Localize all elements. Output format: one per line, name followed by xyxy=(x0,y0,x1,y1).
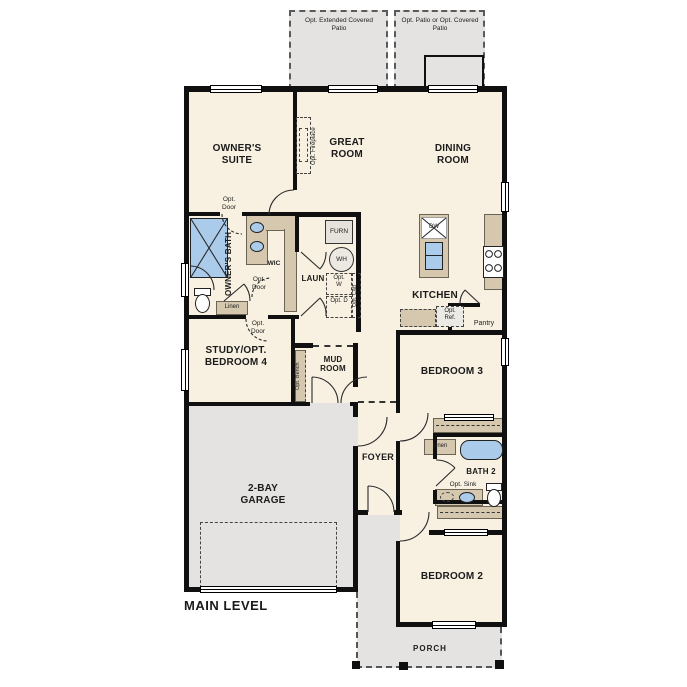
water-heater-label: WH xyxy=(336,256,347,263)
opt-bench-label: Opt. Bench xyxy=(295,352,306,400)
wall-mudroom-top-dashed xyxy=(313,345,353,347)
bedroom2-closet-rod xyxy=(440,512,500,513)
room-label-study: STUDY/OPT. BEDROOM 4 xyxy=(186,345,286,369)
window-bedroom3 xyxy=(501,338,509,366)
kitchen-sink xyxy=(425,242,443,270)
patio-left-label: Opt. Extended Covered Patio xyxy=(302,17,376,33)
owners-shower xyxy=(190,218,228,278)
wall-owners-bath-top-b xyxy=(242,212,297,216)
opt-door-label-study: Opt. Door xyxy=(246,320,270,336)
porch-edge-bottom xyxy=(356,666,502,668)
room-label-garage: 2-BAY GARAGE xyxy=(233,483,293,507)
wall-bath2-top xyxy=(433,433,507,437)
range xyxy=(483,246,504,278)
opt-door-label-wic: Opt. Door xyxy=(247,276,271,292)
opt-dryer-label: Opt. D xyxy=(330,298,348,305)
opt-fireplace-label: Opt. Fireplace xyxy=(311,118,318,174)
furnace-label: FURN xyxy=(325,220,353,244)
room-label-laundry: LAUN xyxy=(298,274,328,283)
bath2-toilet-bowl xyxy=(487,489,501,507)
room-label-dining-room: DINING ROOM xyxy=(423,143,483,167)
room-label-kitchen: KITCHEN xyxy=(395,290,475,302)
porch-edge-left xyxy=(356,592,358,668)
porch-post xyxy=(399,662,408,670)
porch-post xyxy=(495,660,504,669)
room-label-pantry: Pantry xyxy=(466,320,502,328)
room-label-great-room: GREAT ROOM xyxy=(317,137,377,161)
owners-toilet-bowl xyxy=(195,294,210,313)
opt-fireplace-inner xyxy=(299,128,308,162)
window-dining xyxy=(428,85,478,93)
room-label-bath2: BATH 2 xyxy=(461,467,501,476)
wall-owners-bath-bottom-a xyxy=(186,315,246,319)
garage-door xyxy=(200,586,337,593)
bath2-tub xyxy=(460,440,503,460)
porch-post xyxy=(352,661,360,669)
wall-exterior-left xyxy=(184,86,189,592)
opt-fridge-label: Opt. Ref. xyxy=(440,308,460,322)
bath2-sink xyxy=(459,492,475,503)
wall-laundry-top xyxy=(295,212,361,217)
window-great-room xyxy=(328,85,378,93)
linen-label-bath2: Linen xyxy=(424,439,456,455)
garage-option-outline xyxy=(200,522,337,588)
opening-foyer-top-dashed xyxy=(358,401,396,403)
floor-plan: Opt. Extended Covered Patio Opt. Patio o… xyxy=(0,0,687,687)
opt-sink-label: Opt. Sink xyxy=(446,481,480,489)
bath2-opt-sink xyxy=(440,492,454,502)
dishwasher-label: DW xyxy=(421,217,447,239)
wall-garage-top xyxy=(184,402,310,406)
wall-hall-left-a xyxy=(396,330,400,413)
window-owners-bath xyxy=(181,263,189,297)
room-label-bedroom3: BEDROOM 3 xyxy=(412,366,492,378)
wall-wic-right xyxy=(295,212,299,252)
window-bedroom2 xyxy=(432,621,476,629)
owners-sink xyxy=(250,222,264,233)
wall-foyer-front-a xyxy=(353,510,368,515)
porch-left-area xyxy=(357,515,400,668)
room-label-foyer: FOYER xyxy=(357,452,399,463)
wall-garage-right xyxy=(353,402,358,417)
water-heater: WH xyxy=(329,247,354,272)
owners-sink xyxy=(250,241,264,252)
room-label-mud-room: MUD ROOM xyxy=(313,355,353,374)
room-label-wic: WIC xyxy=(263,260,285,268)
patio-door-dining xyxy=(501,182,509,212)
wall-garage-right-b xyxy=(353,446,358,587)
kitchen-sink-divider xyxy=(426,255,442,256)
wall-mudroom-top xyxy=(291,343,313,348)
opt-cabinet-label: Opt. Cab xyxy=(352,275,359,316)
bedroom3-closet-doors xyxy=(444,414,494,421)
wall-mudroom-right xyxy=(353,343,358,387)
wall-bedroom2-left xyxy=(396,541,400,627)
room-label-bedroom2: BEDROOM 2 xyxy=(412,571,492,583)
bedroom2-closet-doors xyxy=(444,529,488,536)
room-label-owners-suite: OWNER'S SUITE xyxy=(197,143,277,167)
opt-washer-label: Opt. W xyxy=(330,275,348,289)
wall-owners-bath-top-a xyxy=(186,212,220,216)
bedroom3-closet-rod xyxy=(436,425,500,426)
room-label-owners-bath: OWNER'S BATH xyxy=(224,228,242,300)
plan-title: MAIN LEVEL xyxy=(184,598,294,613)
opt-door-label-bath-top: Opt. Door xyxy=(216,196,242,212)
room-label-porch: PORCH xyxy=(405,644,455,653)
window-owners-suite xyxy=(210,85,262,93)
kitchen-opt-cabinet-counter xyxy=(400,309,436,327)
linen-label-owners: Linen xyxy=(216,301,248,315)
patio-right-label: Opt. Patio or Opt. Covered Patio xyxy=(401,17,479,33)
